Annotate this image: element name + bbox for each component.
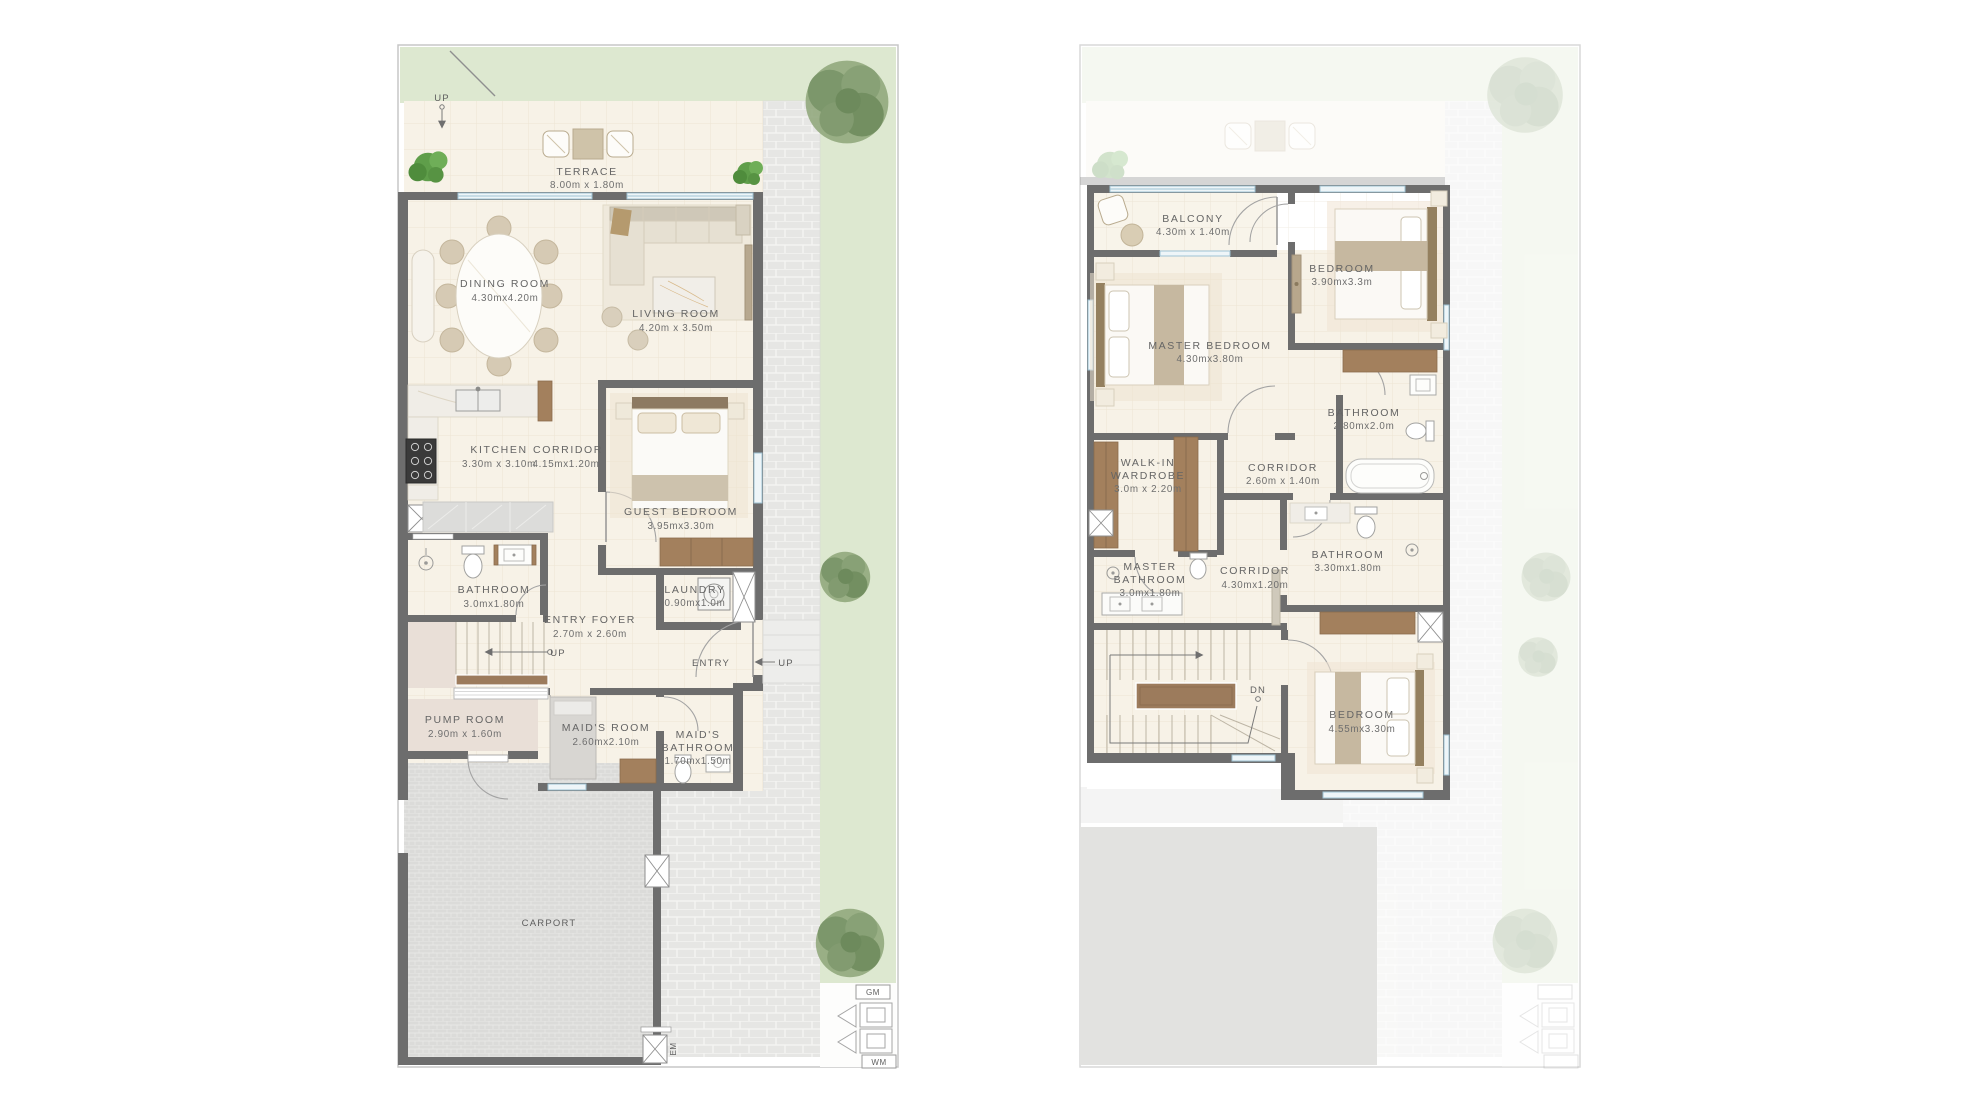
room-dims-laundry: 0.90mx1.0m: [665, 598, 726, 609]
room-dims-maids-bathroom: 1.70mx1.50m: [664, 756, 731, 767]
room-dims-guest-bedroom: 3.95mx3.30m: [647, 521, 714, 532]
tree-icon: [820, 552, 870, 602]
room-label-terrace: TERRACE: [556, 166, 617, 178]
terrace-furniture: [543, 129, 633, 159]
toilet-icon: [1190, 559, 1206, 579]
front-walkway: [661, 790, 820, 1057]
room-label-living: LIVING ROOM: [632, 308, 720, 320]
room-dims-entry-foyer: 2.70m x 2.60m: [553, 629, 627, 640]
room-dims-bathroom-280: 2.80mx2.0m: [1334, 421, 1395, 432]
ground-floor-plan: EM GM WM UP UP ENTRY UP CARPORT TERRACE …: [398, 45, 898, 1068]
room-dims-master-bedroom: 4.30mx3.80m: [1176, 354, 1243, 365]
room-dims-dining: 4.30mx4.20m: [471, 293, 538, 304]
wm-label: WM: [871, 1058, 886, 1067]
mirror: [1272, 570, 1280, 625]
first-floor-plan: DN BALCONY 4.30m x 1.40m MASTER BEDROOM …: [1080, 45, 1580, 1068]
room-dims-corridor-260: 2.60m x 1.40m: [1246, 476, 1320, 487]
room-dims-living: 4.20m x 3.50m: [639, 323, 713, 334]
room-dims-bedroom1: 3.90mx3.3m: [1312, 277, 1373, 288]
room-label-dining: DINING ROOM: [460, 278, 550, 290]
room-label-maids-bathroom-2: BATHROOM: [662, 742, 735, 754]
carport-below: [1080, 827, 1377, 1065]
room-label-kitchen: KITCHEN: [470, 444, 527, 456]
room-label-guest-bedroom: GUEST BEDROOM: [624, 506, 738, 518]
stair-zone: [408, 622, 456, 688]
room-dims-master-bathroom: 3.0mx1.80m: [1120, 588, 1181, 599]
lawn-right-strip: [820, 101, 896, 983]
room-label-maids-room: MAID'S ROOM: [562, 722, 650, 734]
room-label-maids-bathroom: MAID'S: [676, 729, 721, 741]
stair-railing: [454, 688, 548, 699]
room-label-master-bedroom: MASTER BEDROOM: [1148, 340, 1271, 352]
wardrobe: [660, 538, 753, 566]
room-label-corridor-260: CORRIDOR: [1248, 462, 1318, 474]
room-label-laundry: LAUNDRY: [664, 584, 725, 596]
room-dims-pump-room: 2.90m x 1.60m: [428, 729, 502, 740]
room-label-corridor: CORRIDOR: [533, 444, 603, 456]
room-label-corridor-430: CORRIDOR: [1220, 565, 1290, 577]
room-label-walkin: WALK-IN: [1121, 457, 1176, 469]
room-dims-corridor-430: 4.30mx1.20m: [1221, 580, 1288, 591]
entry-label: ENTRY: [692, 658, 730, 669]
room-dims-bathroom-330: 3.30mx1.80m: [1314, 563, 1381, 574]
tree-icon: [816, 909, 884, 977]
dn-label: DN: [1250, 685, 1266, 696]
room-label-bathroom-280: BATHROOM: [1328, 407, 1401, 419]
roof-ledge: [1087, 763, 1288, 789]
room-label-bedroom1: BEDROOM: [1309, 263, 1374, 275]
room-dims-bathroom: 3.0mx1.80m: [464, 599, 525, 610]
toilet-icon: [1357, 516, 1375, 538]
bed-headboard: [1096, 283, 1105, 387]
entry-porch: [763, 620, 820, 683]
room-label-bedroom2: BEDROOM: [1329, 709, 1394, 721]
toilet-icon: [1406, 423, 1426, 439]
console: [1343, 350, 1437, 372]
tree-icon: [806, 61, 889, 144]
room-dims-balcony: 4.30m x 1.40m: [1156, 227, 1230, 238]
room-label-pump-room: PUMP ROOM: [425, 714, 505, 726]
side-walkway: [763, 101, 820, 790]
up-stairs-label: UP: [550, 648, 566, 659]
room-label-walkin-2: WARDROBE: [1111, 470, 1185, 482]
master-bedroom-set: [1090, 263, 1222, 406]
up-garden-label: UP: [434, 93, 450, 104]
carport-label: CARPORT: [522, 918, 577, 929]
carport-paving: [404, 763, 661, 1057]
up-entry-label: UP: [778, 658, 794, 669]
bed-headboard: [1415, 670, 1424, 766]
stair-landing: [456, 675, 548, 685]
room-label-entry-foyer: ENTRY FOYER: [544, 614, 636, 626]
room-dims-terrace: 8.00m x 1.80m: [550, 180, 624, 191]
room-label-bathroom-330: BATHROOM: [1312, 549, 1385, 561]
floorplan-canvas: EM GM WM UP UP ENTRY UP CARPORT TERRACE …: [0, 0, 1980, 1115]
gm-label: GM: [866, 988, 880, 997]
room-dims-kitchen: 3.30m x 3.10m: [462, 459, 536, 470]
room-label-bathroom: BATHROOM: [458, 584, 531, 596]
tv-console: [745, 245, 752, 320]
floorplan-drawing: EM GM WM UP UP ENTRY UP CARPORT TERRACE …: [0, 0, 1980, 1115]
room-dims-bedroom2: 4.55mx3.30m: [1328, 724, 1395, 735]
em-label: EM: [669, 1043, 678, 1056]
room-label-balcony: BALCONY: [1162, 213, 1223, 225]
toilet-icon: [464, 554, 482, 578]
room-dims-walkin: 3.0m x 2.20m: [1114, 484, 1182, 495]
maid-wardrobe: [620, 759, 656, 783]
room-dims-corridor: 4.15mx1.20m: [532, 459, 599, 470]
room-label-master-bathroom: MASTER: [1123, 561, 1176, 573]
bed-headboard: [632, 397, 728, 409]
room-dims-maids-room: 2.60mx2.10m: [572, 737, 639, 748]
room-label-master-bathroom-2: BATHROOM: [1114, 574, 1187, 586]
sink-icon: [1410, 375, 1436, 395]
bed-headboard: [1427, 207, 1437, 321]
